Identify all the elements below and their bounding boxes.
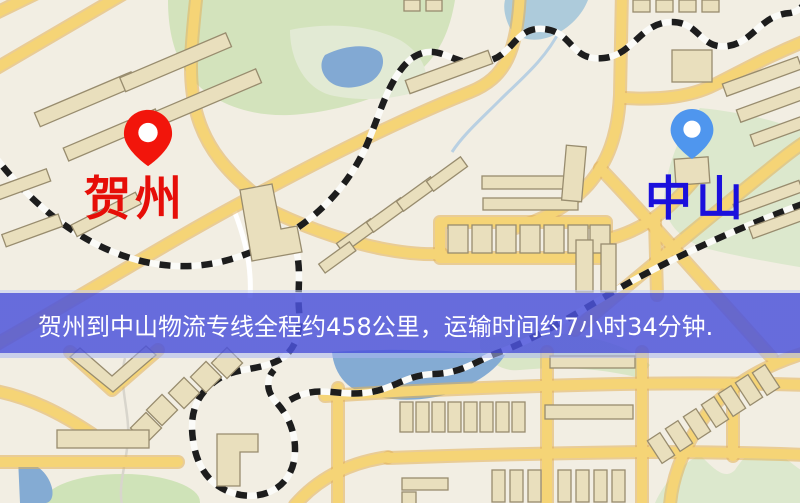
route-banner-text: 贺州到中山物流专线全程约458公里，运输时间约7小时34分钟.: [0, 307, 713, 342]
red-map-pin-icon: [121, 106, 175, 170]
route-banner: 贺州到中山物流专线全程约458公里，运输时间约7小时34分钟.: [0, 290, 800, 358]
map-canvas: [0, 0, 800, 503]
destination-label: 中山: [645, 176, 747, 223]
blue-map-pin-icon: [668, 104, 716, 164]
origin-label: 贺州: [84, 176, 186, 223]
destination-pin[interactable]: [668, 104, 716, 164]
map-view: 贺州 中山 贺州到中山物流专线全程约458公里，运输时间约7小时34分钟.: [0, 0, 800, 503]
origin-pin[interactable]: [121, 106, 175, 170]
